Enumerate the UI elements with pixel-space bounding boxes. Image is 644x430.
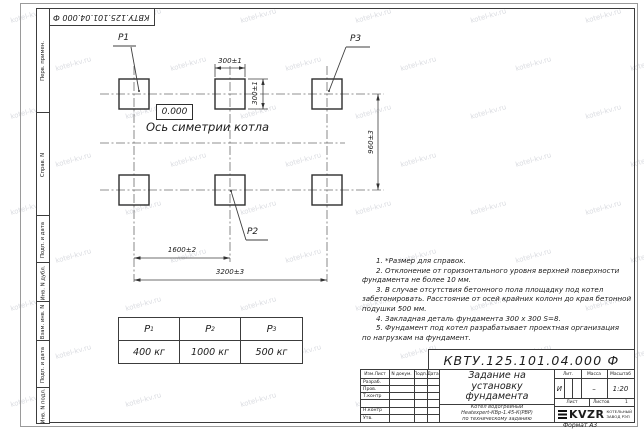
load-value-p3: 500 кг bbox=[241, 341, 302, 363]
leader-p1 bbox=[113, 46, 139, 91]
note-line: 4. Закладная деталь фундамента 300 х 300… bbox=[362, 314, 638, 324]
arrow bbox=[376, 184, 379, 191]
header-n-dokum: N докум. bbox=[389, 370, 414, 378]
arrow bbox=[321, 278, 328, 281]
p-index: 3 bbox=[273, 326, 277, 333]
document-subtitle: Котел водогрейный Heatexpert-КВр-1.45-К(… bbox=[440, 405, 554, 422]
leader-p1-dot bbox=[138, 90, 140, 92]
company-caption-line: ЗАВОД РЭП bbox=[606, 415, 632, 419]
p-index: 1 bbox=[150, 326, 154, 333]
dim-text-total-span: 3200±3 bbox=[208, 268, 252, 276]
mass-value: – bbox=[581, 379, 607, 398]
arrow bbox=[215, 66, 221, 69]
subtitle-line: по техническому заданию bbox=[440, 417, 554, 423]
row-tkontr: Т.контр bbox=[363, 394, 381, 399]
pad-load-table: P1 P2 P3 400 кг 1000 кг 500 кг bbox=[118, 317, 303, 364]
level-mark: 0.000 bbox=[156, 104, 193, 120]
title-line: Задание на bbox=[440, 371, 554, 382]
p-index: 2 bbox=[211, 326, 215, 333]
sheet-label: Лист bbox=[555, 398, 589, 406]
leader-p3-dot bbox=[328, 90, 330, 92]
dim-text-col-spacing: 1600±2 bbox=[160, 246, 204, 254]
signature-section: Изм.Лист N докум. Подп. Дата Разраб. Про… bbox=[361, 370, 439, 422]
drawing-sheet: kotel-kv.rukotel-kv.rukotel-kv.rukotel-k… bbox=[0, 0, 644, 430]
designation-text: КВТУ.125.101.04.000 Ф bbox=[443, 353, 619, 368]
symmetry-axis-label: Ось симетрии котла bbox=[146, 120, 269, 134]
level-mark-value: 0.000 bbox=[162, 107, 188, 117]
kvzr-logo-text: KVZR bbox=[569, 408, 604, 421]
note-line: по нагрузкам на фундамент. bbox=[362, 333, 638, 343]
format-label: Формат А3 bbox=[563, 422, 597, 429]
row-utv: Утв. bbox=[363, 416, 373, 421]
load-table-header-p2: P2 bbox=[180, 318, 241, 341]
row-nkontr: Н.контр bbox=[363, 408, 382, 413]
load-value-p2: 1000 кг bbox=[180, 341, 241, 363]
header-data: Дата bbox=[427, 370, 439, 378]
row-prov: Пров. bbox=[363, 387, 376, 392]
scale-header: Масштаб bbox=[607, 370, 634, 378]
designation-box: КВТУ.125.101.04.000 Ф bbox=[428, 349, 634, 371]
scale-value: 1:20 bbox=[607, 379, 634, 398]
document-title: Задание на установку фундамента bbox=[440, 371, 554, 403]
divider bbox=[361, 414, 439, 415]
pad-label-p2: P2 bbox=[247, 227, 258, 237]
divider bbox=[555, 406, 634, 407]
lit-value: И bbox=[555, 379, 564, 398]
note-line: 2. Отклонение от горизонтального уровня … bbox=[362, 266, 638, 276]
document-title-section: Задание на установку фундамента Котел во… bbox=[440, 370, 554, 422]
lit-header: Лит. bbox=[555, 370, 581, 378]
arrow bbox=[134, 256, 141, 259]
company-caption: КОТЕЛЬНЫЙ ЗАВОД РЭП bbox=[606, 410, 632, 419]
divider bbox=[564, 379, 565, 398]
divider bbox=[589, 398, 590, 406]
arrow bbox=[376, 94, 379, 101]
note-line: 1. *Размер для справок. bbox=[362, 256, 638, 266]
note-line: фундамента не более 10 мм. bbox=[362, 275, 638, 285]
divider bbox=[361, 399, 439, 400]
pad-label-p1: P1 bbox=[118, 33, 129, 43]
dim-text-pad-width: 300±1 bbox=[212, 57, 248, 65]
note-line: 3. В случае отсутствия бетонного пола пл… bbox=[362, 285, 638, 295]
mass-header: Масса bbox=[581, 370, 607, 378]
leader-p3 bbox=[329, 47, 370, 91]
note-line: 5. Фундамент под котел разрабатывает про… bbox=[362, 323, 638, 333]
divider bbox=[572, 379, 573, 398]
note-line: забетонировать. Расстояние от осей крайн… bbox=[362, 294, 638, 304]
arrow bbox=[261, 79, 264, 85]
leader-p2-dot bbox=[230, 190, 232, 192]
load-table-header-p1: P1 bbox=[119, 318, 180, 341]
company-logo: KVZR КОТЕЛЬНЫЙ ЗАВОД РЭП bbox=[558, 408, 632, 421]
title-block: Изм.Лист N докум. Подп. Дата Разраб. Про… bbox=[360, 369, 634, 423]
header-podp: Подп. bbox=[414, 370, 427, 378]
attributes-section: Лит. Масса Масштаб И – 1:20 Лист Листов … bbox=[555, 370, 634, 422]
header-izm-list: Изм.Лист bbox=[361, 370, 389, 378]
dim-text-pad-height: 300±1 bbox=[251, 80, 259, 106]
technical-notes: 1. *Размер для справок. 2. Отклонение от… bbox=[362, 256, 638, 342]
load-table-header-p3: P3 bbox=[241, 318, 302, 341]
pad-label-p3: P3 bbox=[350, 34, 361, 44]
arrow bbox=[261, 103, 264, 109]
title-line: фундамента bbox=[440, 392, 554, 403]
arrow bbox=[224, 256, 231, 259]
arrow bbox=[239, 66, 245, 69]
load-value-p1: 400 кг bbox=[119, 341, 180, 363]
sheets-value: 1 bbox=[625, 400, 628, 405]
sheets-label: Листов bbox=[593, 400, 609, 405]
row-razrab: Разраб. bbox=[363, 380, 381, 385]
dim-text-row-spacing: 960±3 bbox=[367, 129, 375, 155]
kvzr-logo-icon bbox=[558, 410, 567, 420]
note-line: подушки 500 мм. bbox=[362, 304, 638, 314]
arrow bbox=[134, 278, 141, 281]
